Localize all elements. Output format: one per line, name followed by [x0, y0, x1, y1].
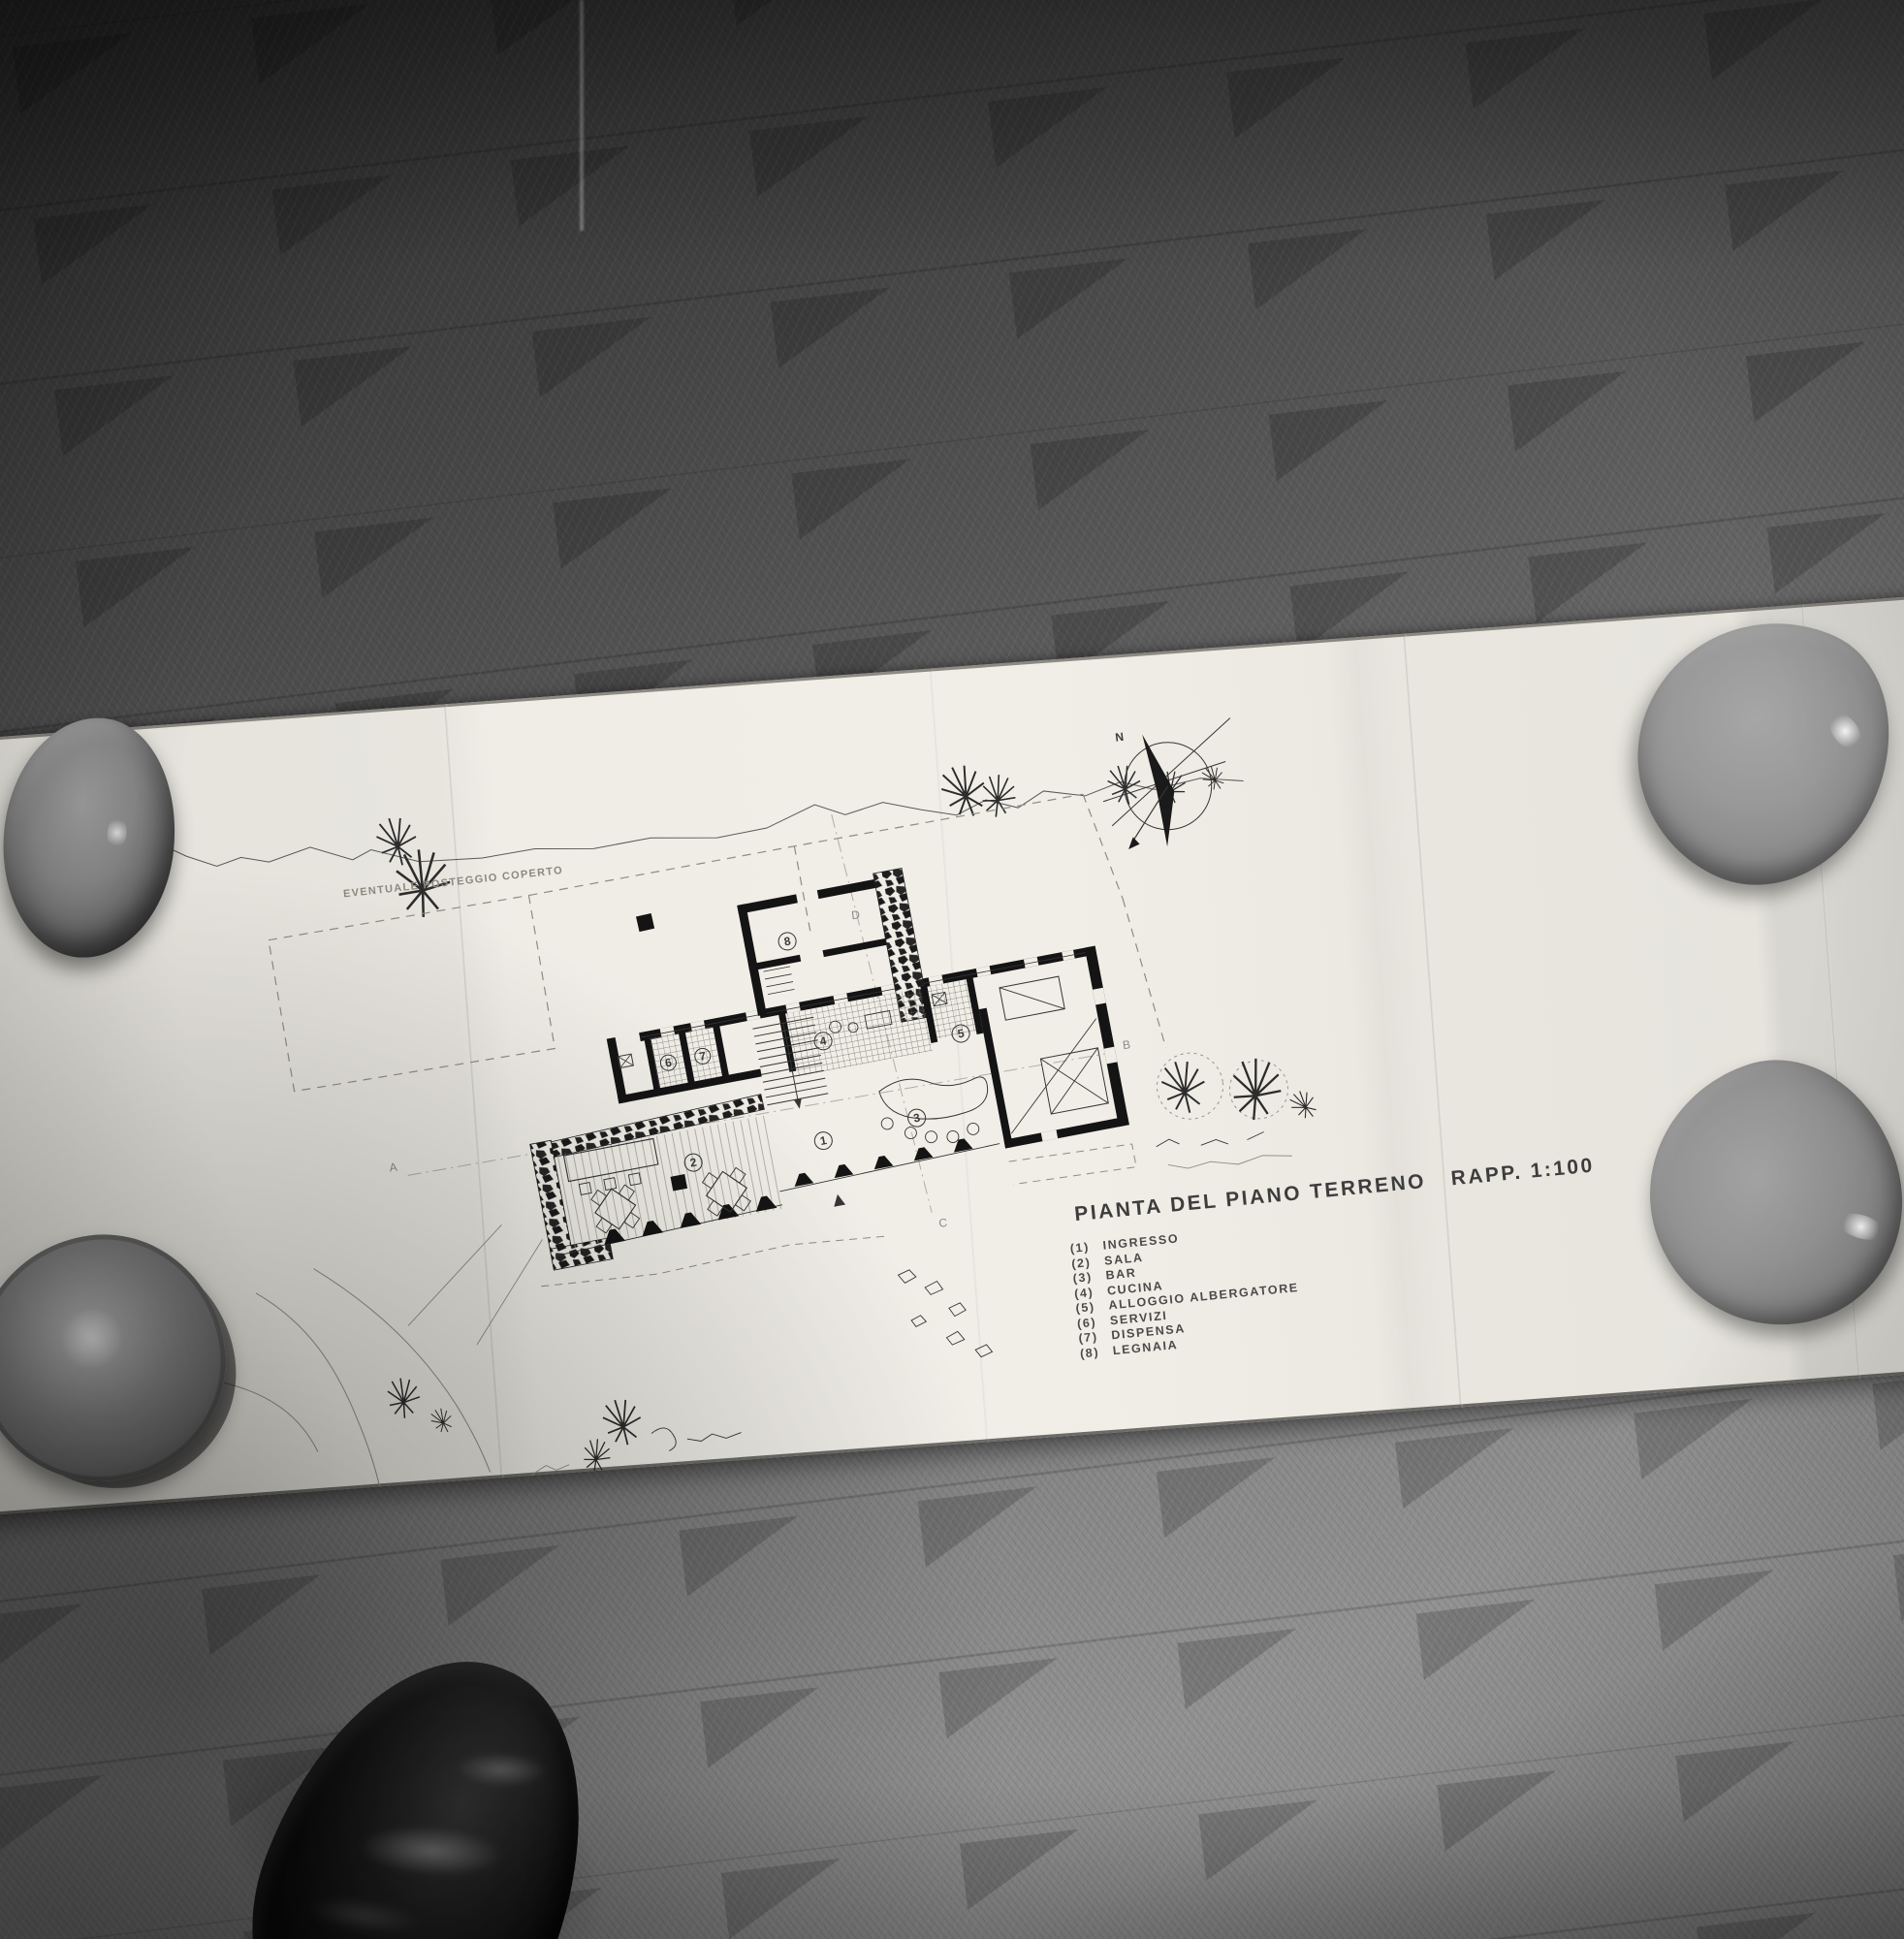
room-number-3: 3 — [912, 1111, 921, 1126]
tree-cluster-right — [1146, 1038, 1327, 1174]
legend-num: (8) — [1079, 1344, 1113, 1362]
room-alloggio-albergatore — [971, 946, 1129, 1149]
floor-plan-drawing: A B C D — [0, 593, 1904, 1516]
room-bar — [874, 1065, 997, 1155]
room-ingresso — [777, 1132, 1005, 1217]
rock-path — [898, 1261, 993, 1366]
bowl-highlight — [1824, 707, 1868, 754]
terrain-skyline — [143, 706, 1248, 954]
section-marker-d: D — [850, 907, 861, 922]
building-plan: 1 2 3 4 5 6 7 8 — [477, 836, 1141, 1302]
drawing-sheet: A B C D — [0, 593, 1904, 1516]
plank-seam-highlight — [580, 0, 584, 231]
plan-black-square — [636, 913, 654, 932]
section-lines: A B C D — [354, 782, 1150, 1294]
shoe-highlight — [454, 1751, 548, 1789]
room-number-1: 1 — [819, 1133, 828, 1148]
section-marker-b: B — [1122, 1037, 1131, 1052]
bowl-highlight — [106, 815, 128, 850]
room-sala — [529, 1095, 787, 1270]
shoe-highlight — [357, 1821, 505, 1881]
bowl-highlight — [54, 1306, 130, 1373]
shoe-highlight — [303, 1891, 424, 1939]
bowl-highlight — [1835, 1208, 1887, 1244]
compass-north-label: N — [1115, 730, 1125, 745]
plan-legend: (1)INGRESSO (2)SALA (3)BAR (4)CUCINA (5)… — [1069, 1221, 1304, 1361]
section-marker-c: C — [938, 1216, 949, 1230]
room-number-8: 8 — [783, 934, 792, 948]
section-marker-a: A — [389, 1160, 398, 1175]
photo-frame: A B C D — [0, 0, 1904, 1939]
